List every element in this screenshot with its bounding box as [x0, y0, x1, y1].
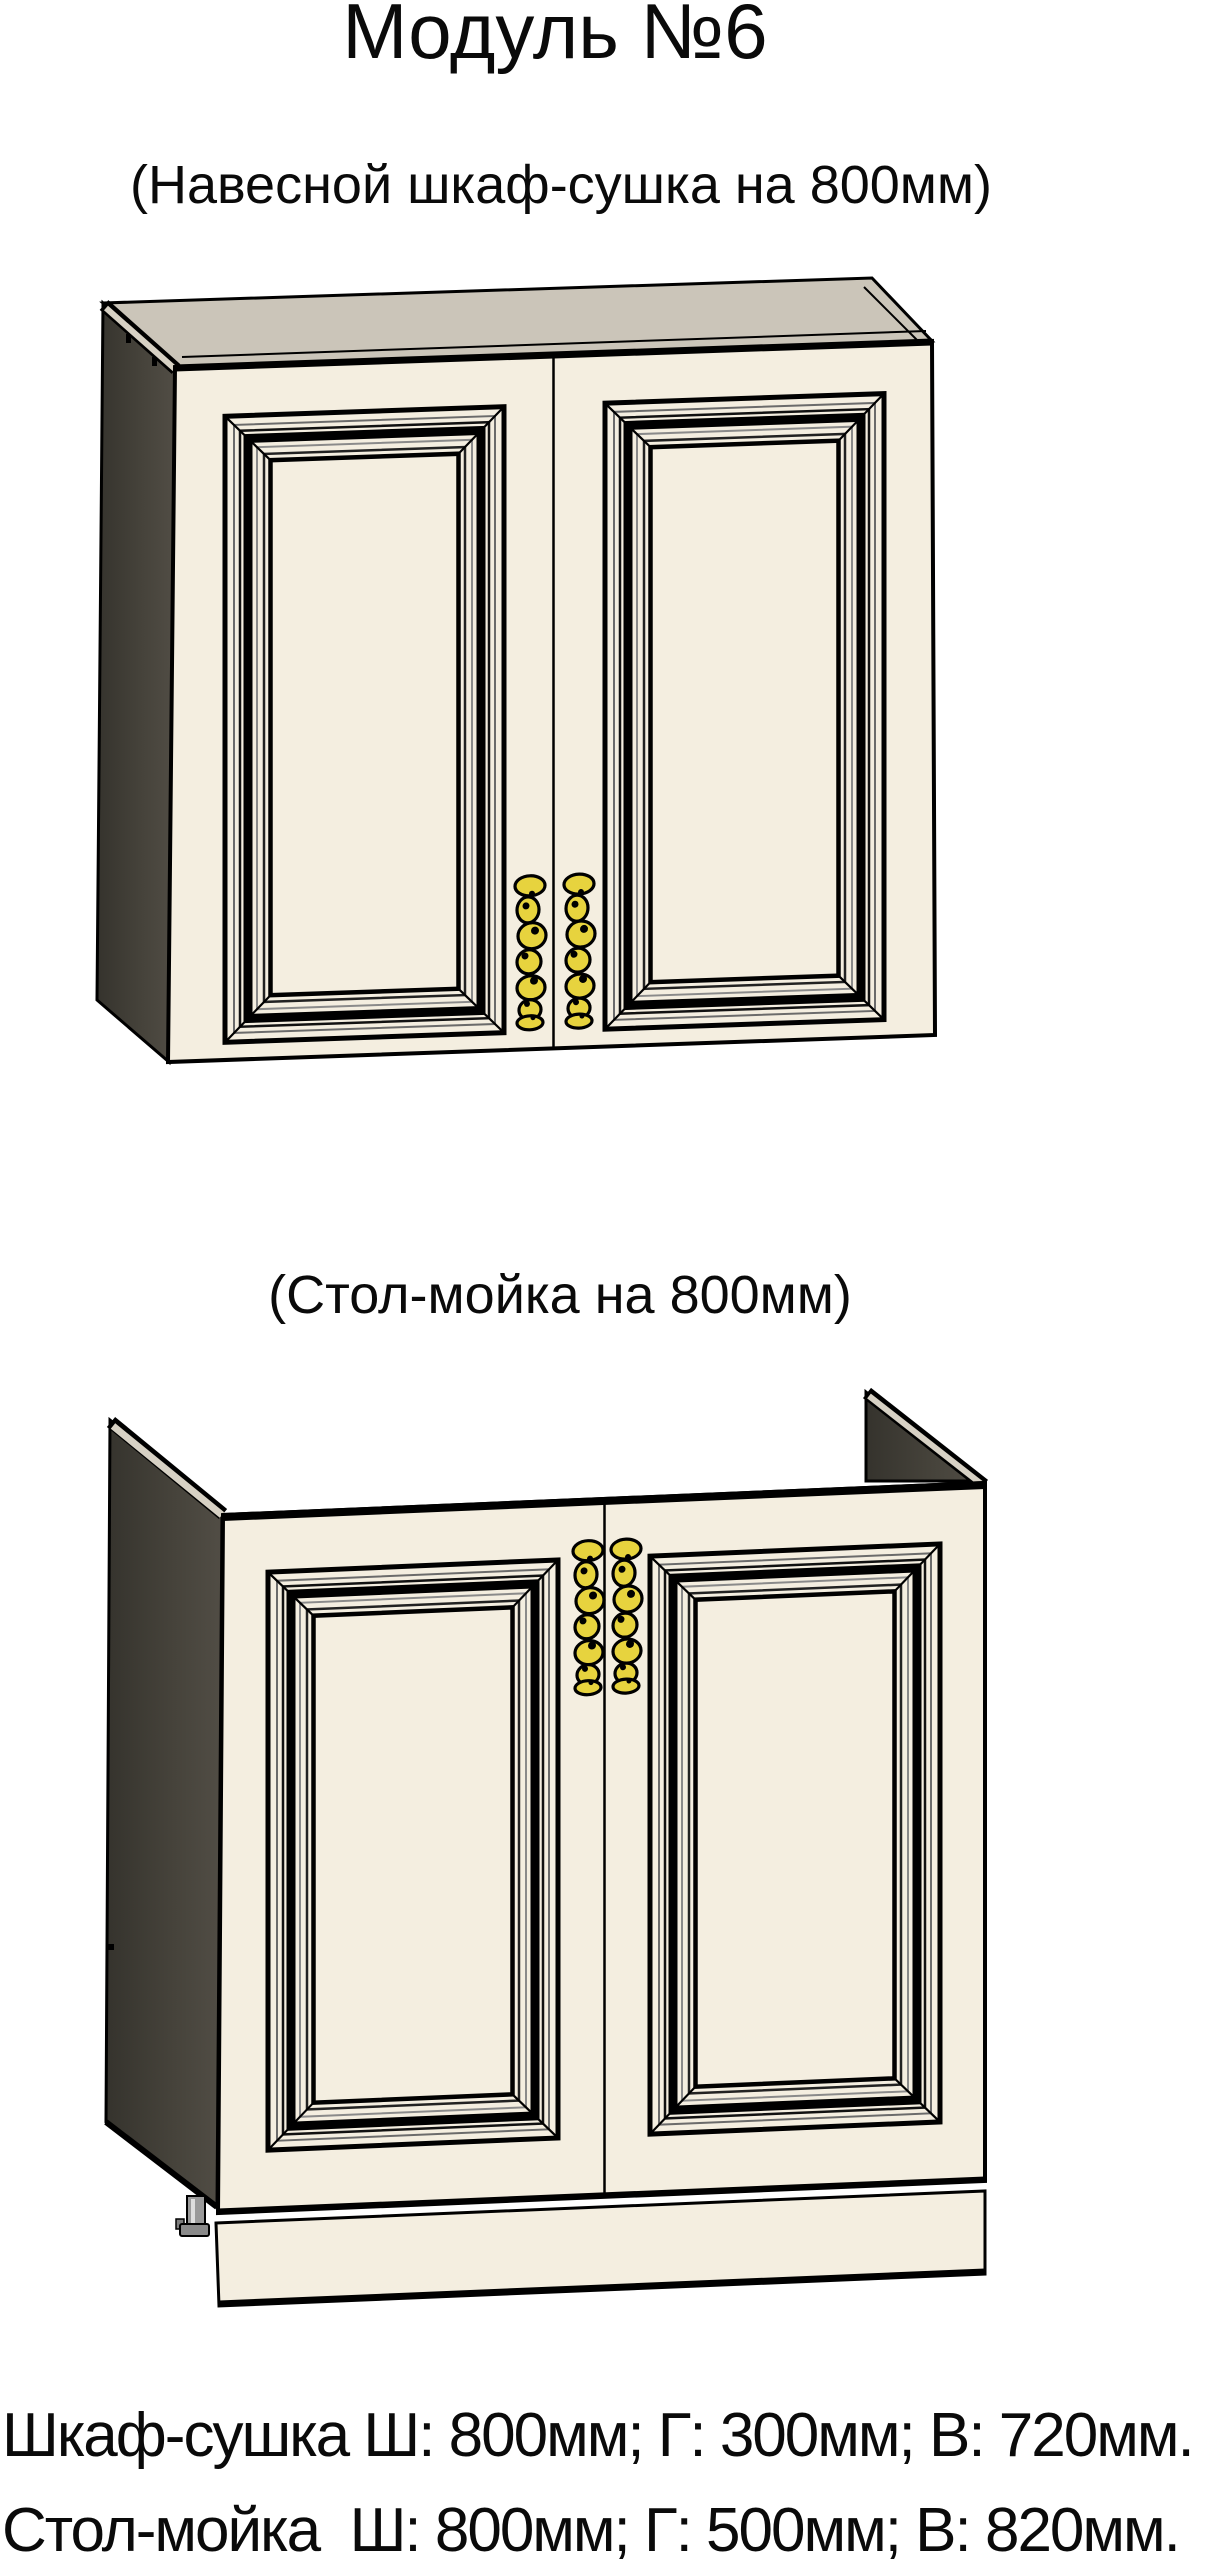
wall-cabinet-drawing [97, 278, 935, 1062]
wall-cabinet-front [168, 341, 935, 1062]
sink-cabinet-left-panel [106, 1420, 222, 2207]
cabinet-leg [176, 2196, 209, 2236]
cabinet-drawings [0, 0, 1230, 2560]
document-page: Модуль №6 (Навесной шкаф-сушка на 800мм)… [0, 0, 1230, 2560]
sink-cabinet-drawing [106, 1392, 985, 2306]
wall-cabinet-left-panel [97, 303, 175, 1062]
